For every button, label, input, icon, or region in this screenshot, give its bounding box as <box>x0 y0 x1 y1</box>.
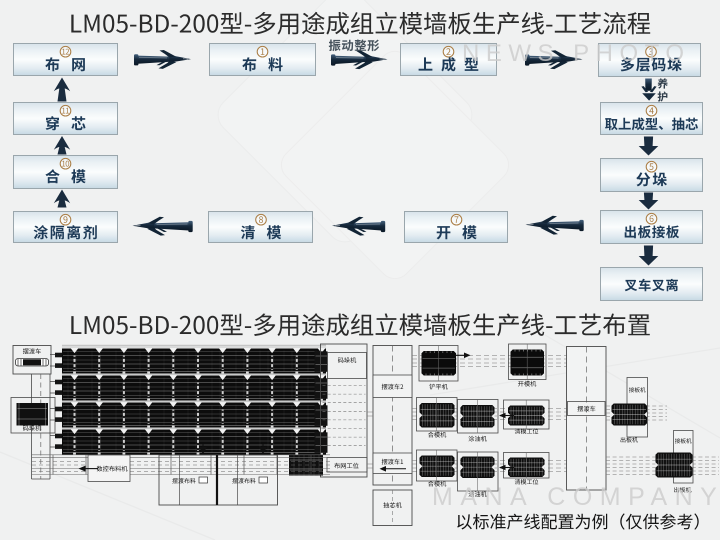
svg-text:NEWS PHOTO: NEWS PHOTO <box>462 40 691 67</box>
svg-text:MANA COMPANY: MANA COMPANY <box>432 483 720 511</box>
